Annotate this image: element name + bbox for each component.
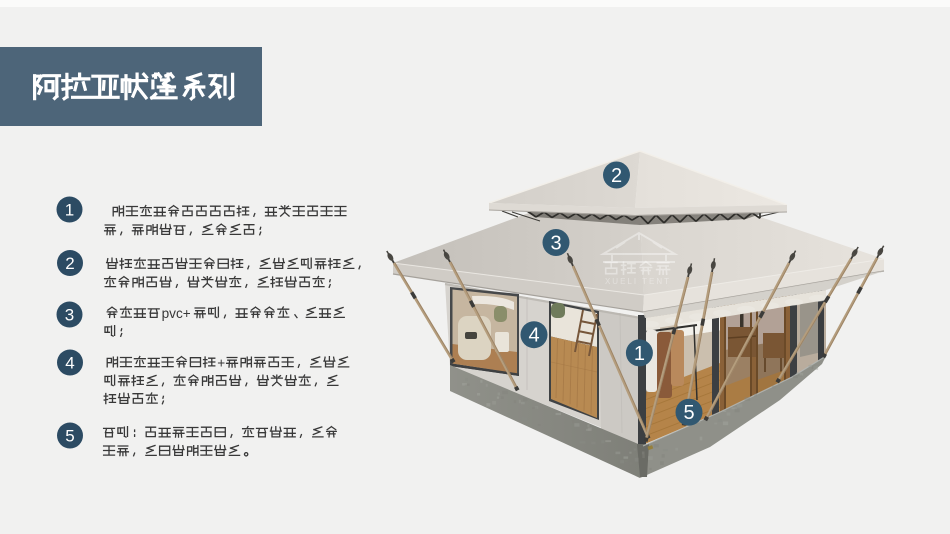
svg-text:5: 5 <box>683 402 694 424</box>
svg-text:1: 1 <box>634 343 645 365</box>
svg-text:2: 2 <box>611 165 622 187</box>
svg-text:3: 3 <box>550 233 561 255</box>
svg-text:XUELI TENT: XUELI TENT <box>605 277 671 286</box>
svg-text:4: 4 <box>528 325 539 347</box>
